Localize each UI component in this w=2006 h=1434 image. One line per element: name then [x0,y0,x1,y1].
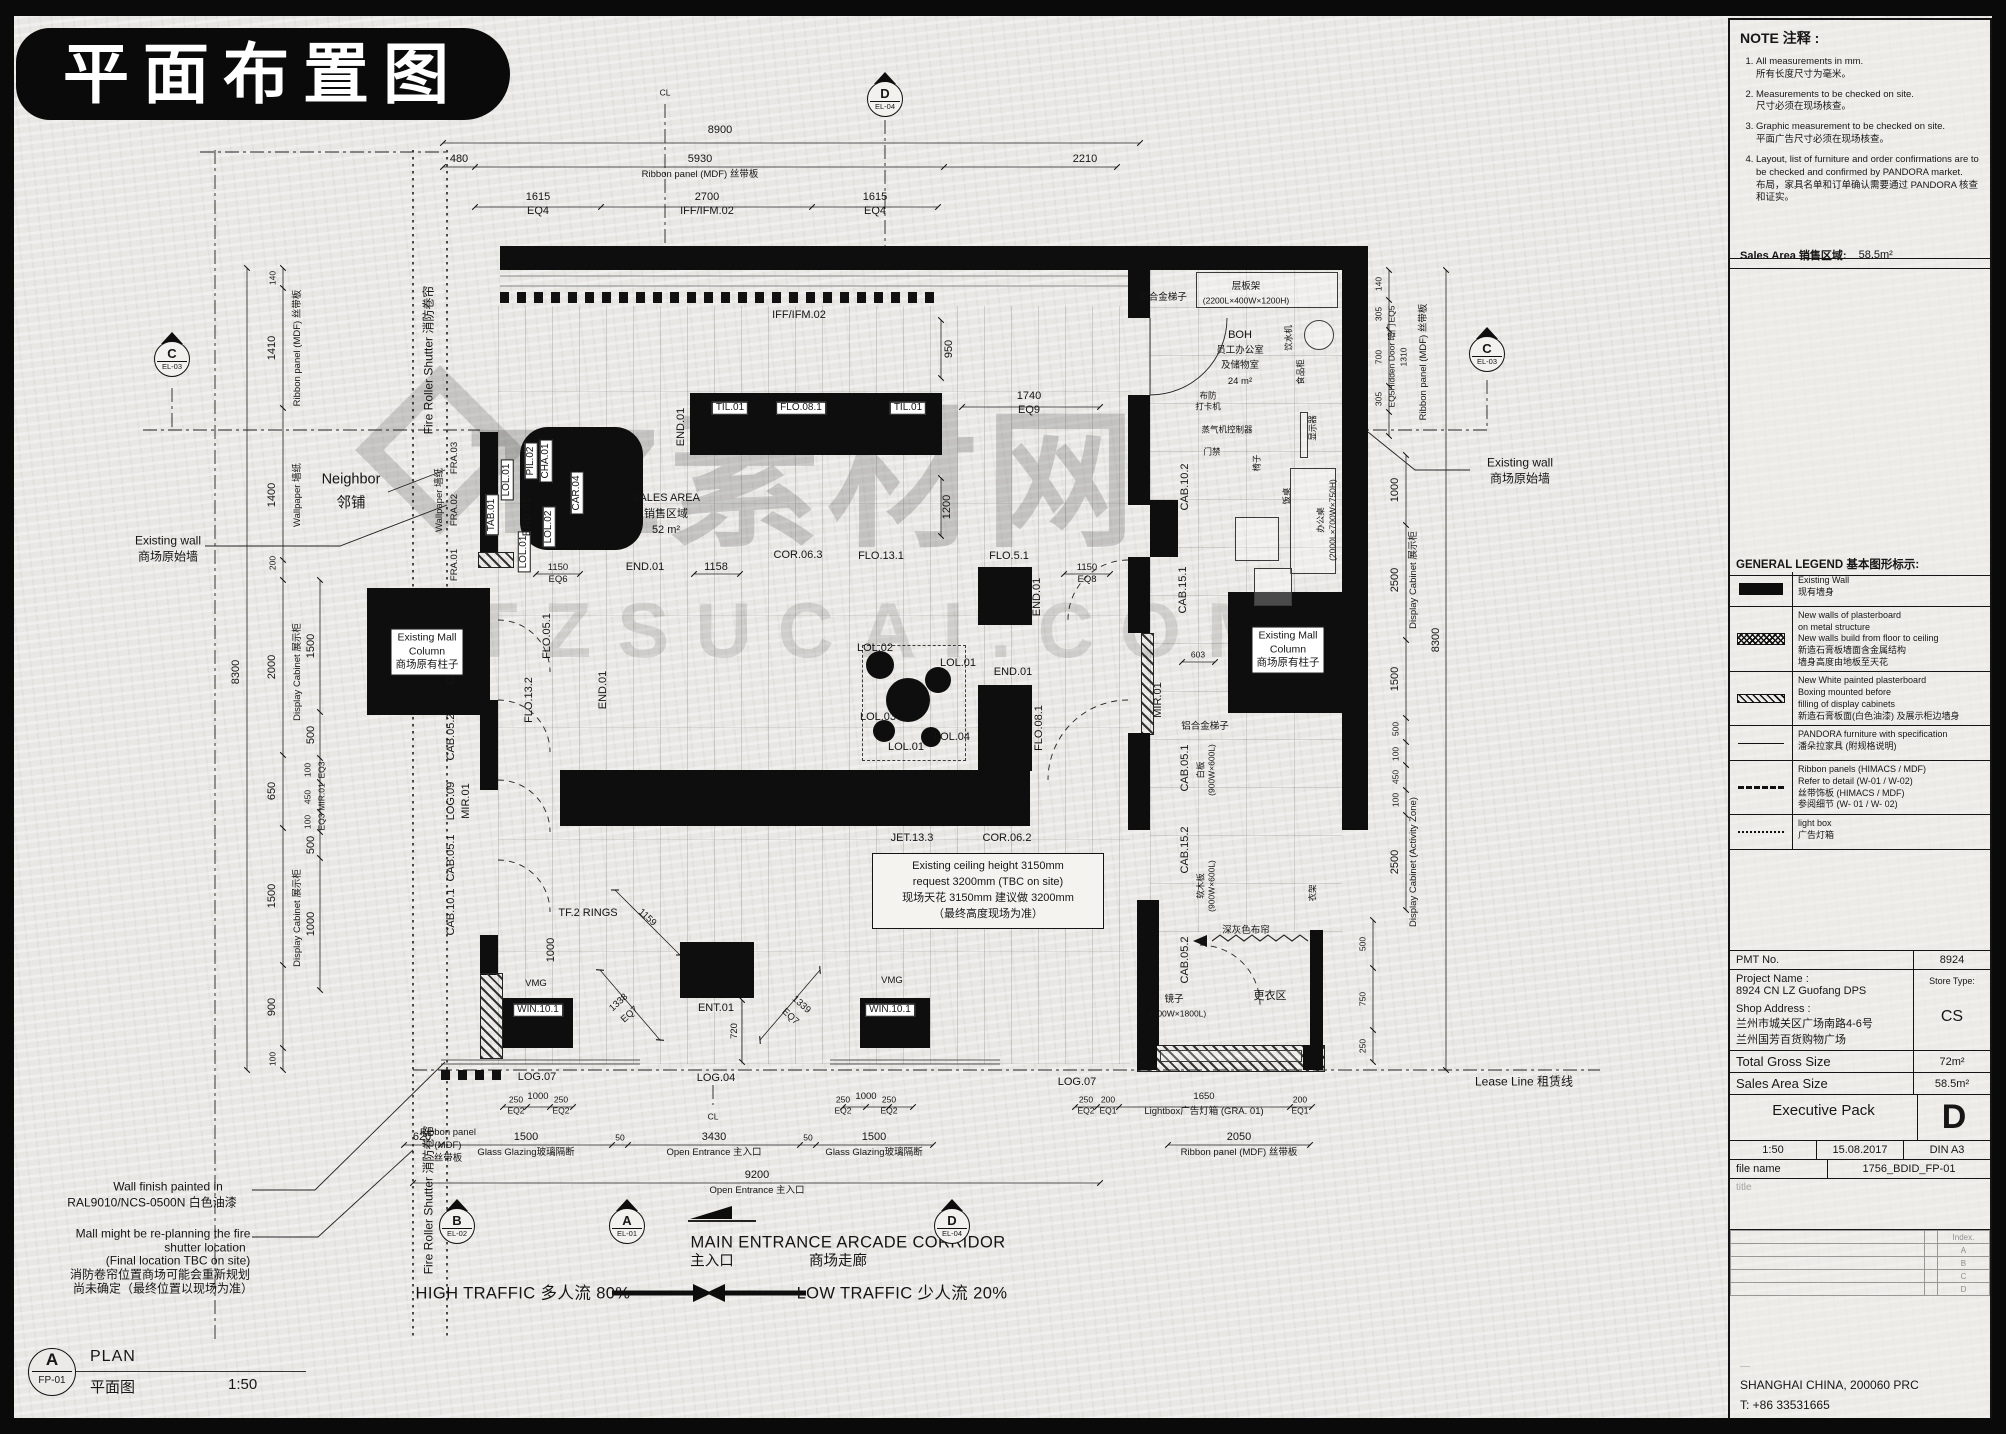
plan-label: 900 [267,998,279,1016]
note-item-en: Measurements to be checked on site. [1756,89,1914,100]
frame-top [0,0,2006,16]
plan-label: 100 [269,1052,278,1066]
fixture-outline [1254,568,1292,606]
plan-label: IFF/IFM.02 [772,310,826,322]
legend-line: on metal structure [1798,622,1939,634]
plan-label: shutter location [164,1242,245,1255]
frame-left [0,0,14,1434]
plan-label: EQ2 [880,1107,897,1116]
plan-label: 250 [882,1096,896,1105]
address-line1: 兰州市城关区广场南路4-6号 [1736,1015,1873,1031]
plan-label: Wallpaper 墙纸 [293,463,303,527]
plan-label: 3430 [702,1132,726,1144]
plan-label: 椅子 [1253,454,1262,471]
elevation-marker-bubble: DEL-04 [867,81,903,117]
wall-segment [500,246,1368,270]
plan-label: LOL.02 [857,643,893,655]
legend-symbol-existing-swatch [1739,583,1783,595]
plan-label: 1615 [863,192,887,204]
legend-row-text: Existing Wall现有墙身 [1793,572,1854,606]
plan-label: Ribbon panel (MDF) 丝带板 [1181,1148,1298,1158]
legend-symbol-ribbon-swatch [1738,786,1784,789]
wall-segment [441,1070,503,1080]
plan-label: 250 [554,1096,568,1105]
plan-label: VMG [881,976,903,986]
plan-label: 8300 [231,660,243,684]
pmt-row: PMT No. 8924 [1730,951,1990,970]
plan-label: 2500 [1390,850,1402,874]
legend-symbol-newwall-swatch [1737,633,1785,645]
plan-label: Fire Roller Shutter 消防卷帘 [423,1126,436,1275]
plan-label: VMG [525,979,547,989]
fixture-outline [1235,517,1279,561]
pmt-value: 8924 [1913,951,1990,969]
frame-bottom [0,1418,2006,1434]
plan-label: MIR.01 [461,783,473,818]
plan-label: TIL.01 [712,402,748,415]
legend-row-ribbon: Ribbon panels (HIMACS / MDF)Refer to det… [1730,761,1990,815]
note-item: Measurements to be checked on site.尺寸必须在… [1756,89,1980,115]
legend-symbol-cell [1730,726,1793,760]
legend-row-text: PANDORA furniture with specification潘朵拉家… [1793,726,1952,760]
store-type-value: CS [1941,1008,1963,1026]
plan-label: Lease Line 租赁线 [1475,1076,1573,1089]
plan-label: 1500 [1390,667,1402,691]
ceiling-note-line: （最终高度现场为准） [879,907,1097,923]
lounge-chair [866,651,894,679]
gross-size-row: Total Gross Size 72m² [1730,1051,1990,1073]
note-item-en: Graphic measurement to be checked on sit… [1756,121,1945,132]
plan-label: TF.2 RINGS [558,908,617,920]
footer-faded: — [1740,1361,1980,1372]
plan-label: 50 [803,1134,812,1143]
legend-row-text: light box广告灯箱 [1793,815,1839,849]
plan-label: 140 [1375,277,1384,291]
paper-size: DIN A3 [1903,1141,1990,1159]
legend-table: Existing Wall现有墙身New walls of plasterboa… [1730,572,1990,850]
plan-label: 950 [944,340,956,358]
legend-symbol-cell [1730,572,1793,606]
legend-line: 丝带饰板 (HIMACS / MDF) [1798,788,1926,800]
plan-label: 白板 [1197,761,1206,778]
plan-label: LOL.01 [501,460,514,501]
sales-area-row: Sales Area 销售区域: 58.5m² [1730,242,1990,269]
plan-label: WIN.10.1 [513,1004,563,1017]
legend-row-existing: Existing Wall现有墙身 [1730,572,1990,607]
plan-label: END.01 [598,671,610,710]
notes-heading: NOTE 注释 : [1740,28,1980,48]
legend-line: 墙身高度由地板至天花 [1798,657,1939,669]
plan-label: 305 [1375,392,1384,406]
filename-value: 1756_BDID_FP-01 [1827,1160,1990,1178]
legend-symbol-boxing-swatch [1737,694,1785,703]
wall-segment [480,935,498,975]
plan-label: 1000 [546,938,558,962]
notes-list: All measurements in mm.所有长度尺寸为毫米。Measure… [1740,56,1980,205]
pack-row: Executive Pack D [1730,1095,1990,1141]
ceiling-note-line: 现场天花 3150mm 建议做 3200mm [879,891,1097,907]
legend-symbol-light-swatch [1738,831,1784,833]
sheet-ref-title-en: PLAN [90,1348,136,1366]
pack-revision-letter: D [1917,1095,1990,1140]
plan-label: MIR.01 [318,783,327,810]
plan-label: 商场原始墙 [138,551,198,564]
plan-label: COR.06.3 [774,550,823,562]
wall-segment [500,292,940,303]
note-item-zh: 尺寸必须在现场核查。 [1756,101,1980,114]
plan-label: CAB.10.2 [1180,463,1192,510]
sales-size-label: Sales Area Size [1730,1073,1834,1094]
note-item: Graphic measurement to be checked on sit… [1756,121,1980,147]
plan-label: 500 [306,726,318,744]
legend-line: New walls build from floor to ceiling [1798,633,1939,645]
wall-segment [1128,557,1150,633]
wall-segment [1137,1045,1157,1070]
note-item-en: Layout, list of furniture and order conf… [1756,154,1979,178]
sales-area-value: 58.5m² [1859,249,1893,261]
plan-label: (2200L×400W×1200H) [1203,297,1289,306]
mall-column-label: Existing MallColumn商场原有柱子 [391,629,464,676]
plan-label: 140 [269,271,278,285]
elevation-marker-code: EL-03 [155,362,189,371]
store-type-label: Store Type: [1929,976,1975,986]
sheet-ref-title-zh: 平面图 [90,1376,135,1397]
legend-line: 广告灯箱 [1798,830,1834,842]
plan-label: LOG.07 [1058,1077,1097,1089]
elevation-marker-bubble: CEL-03 [1469,336,1505,372]
plan-label: EQ9 [1018,405,1040,417]
plan-label: 1000 [855,1092,876,1102]
plan-label: 2700 [695,192,719,204]
ceiling-height-note: Existing ceiling height 3150mm request 3… [872,853,1104,929]
plan-label: Neighbor [322,472,381,487]
elevation-marker-bubble: CEL-03 [154,341,190,377]
legend-line: light box [1798,818,1834,830]
plan-label: 2050 [1227,1132,1251,1144]
plan-label: 200 [1101,1096,1115,1105]
plan-label: 更衣区 [1254,991,1287,1003]
plan-label: Existing wall [135,535,201,548]
plan-label: 603 [1191,651,1205,660]
sheet-title-banner: 平面布置图 [16,28,510,120]
pack-label: Executive Pack [1730,1095,1917,1140]
plan-label: 打卡机 [1195,403,1221,412]
plan-label: 100 [1392,747,1401,761]
plan-label: 邻铺 [337,496,366,511]
mall-column-label-line: 商场原有柱子 [396,659,459,673]
plan-label: EQ2 [507,1107,524,1116]
footer-phone: T: +86 33531665 [1740,1398,1980,1412]
elevation-marker-el-04: DEL-04 [865,72,905,128]
plan-label: Existing wall [1487,457,1553,470]
wall-segment [1342,713,1368,830]
plan-label: SALES AREA [632,493,700,505]
plan-label: 500 [1359,937,1368,951]
plan-label: 1500 [267,884,279,908]
plan-label: 员工办公室 [1216,346,1264,356]
plan-label: LOL.04 [934,732,970,744]
plan-label: Ribbon panel (MDF) 丝带板 [642,170,759,180]
frame-right [1992,0,2006,1434]
elevation-marker-bubble: DEL-04 [934,1208,970,1244]
plan-label: Display Cabinet 展示柜 [293,623,303,721]
elevation-marker-letter: C [157,347,187,362]
legend-line: 潘朵拉家具 (附规格说明) [1798,741,1947,753]
plan-label: CAB.05.1 [1180,744,1192,791]
wall-segment [1342,246,1368,726]
legend-symbol-cell [1730,815,1793,849]
plan-label: EQ3 [318,813,327,830]
plan-label: COR.06.2 [983,833,1032,845]
plan-label: FLO.05.1 [542,613,554,659]
plan-label: END.01 [522,498,534,537]
sales-size-row: Sales Area Size 58.5m² [1730,1073,1990,1095]
elevation-marker-el-03: CEL-03 [1467,327,1507,383]
drawing-scale: 1:50 [1730,1141,1816,1159]
plan-label: 750 [1359,992,1368,1006]
elevation-marker-letter: D [870,87,900,102]
plan-label: (900W×600L) [1208,744,1217,796]
plan-label: 8300 [1431,628,1443,652]
title-row-label: title [1730,1179,1758,1229]
elevation-marker-code: EL-02 [440,1229,474,1238]
mall-column-label-line: 商场原有柱子 [1257,657,1320,671]
sheet-ref-rule [76,1371,306,1372]
elevation-marker-el-03: CEL-03 [152,332,192,388]
plan-label: LOL.01 [888,742,924,754]
plan-label: 620 [413,1132,431,1144]
plan-label: Wall finish painted in [113,1181,223,1194]
plan-label: EQ6 [548,575,567,585]
wall-segment [560,770,1030,826]
elevation-marker-letter: B [442,1214,472,1229]
plan-label: Lightbox广告灯箱 (GRA. 01) [1144,1107,1263,1117]
plan-label: FRA.02 [450,494,460,526]
plan-label: 650 [267,782,279,800]
revision-row: A [1731,1244,1990,1257]
plan-label: CAB.15.1 [1178,566,1190,613]
legend-line: filling of display cabinets [1798,699,1960,711]
filename-label: file name [1730,1160,1787,1178]
wall-segment [1128,733,1150,830]
drawing-date: 15.08.2017 [1816,1141,1903,1159]
note-item-zh: 布局，家具名单和订单确认需要通过 PANDORA 核查和证实。 [1756,180,1980,206]
plan-label: 软木板 [1197,873,1206,899]
plan-label: 250 [509,1096,523,1105]
plan-label: 及储物室 [1221,361,1259,371]
plan-label: 商场走廊 [809,1254,867,1269]
sidebar: NOTE 注释 : All measurements in mm.所有长度尺寸为… [1728,18,1992,1422]
plan-label: END.01 [676,408,688,447]
elevation-marker-letter: A [612,1214,642,1229]
sheet-ref-number: FP-01 [29,1372,75,1390]
legend-row-text: New White painted plasterboardBoxing mou… [1793,672,1965,725]
plan-label: 250 [1359,1039,1368,1053]
plan-label: WIN.10.1 [865,1004,915,1017]
elevation-marker-bubble: BEL-02 [439,1208,475,1244]
elevation-marker-el-01: AEL-01 [607,1199,647,1255]
project-cell: Project Name : 8924 CN LZ Guofang DPS Sh… [1730,970,1879,1050]
plan-label: 500 [306,836,318,854]
plan-label: EQ1 [1099,1107,1116,1116]
legend-line: Existing Wall [1798,575,1849,587]
plan-label: CAR.04 [571,471,584,514]
plan-label: Open Entrance 主入口 [666,1148,761,1158]
plan-label: 1150 [548,563,568,573]
plan-label: 显示器 [1309,415,1318,441]
notes-panel: NOTE 注释 : All measurements in mm.所有长度尺寸为… [1730,20,1990,259]
legend-row-boxing: New White painted plasterboardBoxing mou… [1730,672,1990,726]
store-type-cell: Store Type: CS [1913,970,1990,1050]
plan-label: Glass Glazing玻璃隔断 [825,1148,922,1158]
wall-segment [1150,500,1178,557]
plan-label: CAB.15.2 [1180,826,1192,873]
title-block-footer: — SHANGHAI CHINA, 200060 PRC T: +86 3353… [1730,1347,1990,1420]
plan-label: END.01 [626,562,665,574]
gross-size-value: 72m² [1913,1051,1990,1072]
plan-label: 商场原始墙 [1490,473,1550,486]
legend-line: PANDORA furniture with specification [1798,729,1947,741]
plan-label: CL [708,1113,719,1122]
plan-label: EQ3 [318,761,327,778]
plan-label: Wallpaper 墙纸 [435,468,445,532]
plan-label: 100 [304,815,313,829]
mall-column-label-line: Column [1257,643,1320,657]
note-item: Layout, list of furniture and order conf… [1756,154,1980,205]
elevation-marker-el-02: BEL-02 [437,1199,477,1255]
plan-label: 蒸气机控制器 [1201,426,1252,435]
plan-label: TIL.01 [890,402,926,415]
plan-label: TAB.01 [486,495,499,536]
plan-label: FLO.08.1 [776,402,826,415]
plan-label: 2500 [1390,568,1402,592]
plan-label: EQ2 [552,1107,569,1116]
plan-label: EQ5 [1388,305,1397,322]
plan-label: 1000 [1390,478,1402,502]
plan-label: 门禁 [1203,448,1220,457]
plan-label: LOL.01 [940,658,976,670]
plan-label: Glass Glazing玻璃隔断 [477,1148,574,1158]
plan-label: 铝合金梯子 [1139,293,1187,303]
plan-label: LOL.01 [518,532,531,573]
plan-label: 1500 [306,634,318,658]
plan-label: 700 [1375,350,1384,364]
legend-line: Ribbon panels (HIMACS / MDF) [1798,764,1926,776]
plan-label: (2000L×700W×750H) [1329,479,1338,561]
wall-segment [978,685,1032,771]
plan-label: CAB.05.1 [446,834,458,881]
title-row: title [1730,1179,1990,1230]
plan-label: 办公桌 [1317,507,1326,533]
legend-line: 新造石膏板墙面含金属结构 [1798,645,1939,657]
plan-label: 铝合金梯子 [1181,722,1229,732]
plan-label: 1740 [1017,391,1041,403]
wall-segment [478,552,514,568]
legend-symbol-cell [1730,607,1793,671]
plan-label: 层板架 [1232,282,1261,292]
legend-row-text: New walls of plasterboardon metal struct… [1793,607,1944,671]
plan-label: EQ2 [1077,1107,1094,1116]
plan-label: 52 m² [652,525,680,537]
sheet-ref-scale: 1:50 [228,1376,257,1393]
plan-label: Hidden Door 暗门 [1388,323,1397,390]
plan-label: EQ5 [1388,390,1397,407]
note-item: All measurements in mm.所有长度尺寸为毫米。 [1756,56,1980,82]
plan-label: Ribbon panel (MDF) 丝带板 [1419,304,1429,421]
plan-label: 100 [304,763,313,777]
plan-label: 尚未确定（最终位置以现场为准） [73,1283,253,1296]
note-item-en: All measurements in mm. [1756,56,1863,67]
plan-label: 销售区域 [644,509,688,521]
plan-label: (Final location TBC on site) [106,1255,251,1268]
plan-label: 50 [615,1134,624,1143]
plan-label: 1500 [514,1132,538,1144]
legend-row-light: light box广告灯箱 [1730,815,1990,850]
plan-label: 主入口 [690,1254,734,1269]
pmt-label: PMT No. [1730,951,1785,969]
plan-label: 1500 [862,1132,886,1144]
legend-line: 现有墙身 [1798,587,1849,599]
note-item-zh: 所有长度尺寸为毫米。 [1756,69,1980,82]
plan-label: MIR.01 [1153,682,1165,717]
plan-label: Display Cabinet (Activity Zone) [1409,797,1419,927]
legend-line: New walls of plasterboard [1798,610,1939,622]
plan-label: CAB.05.2 [1180,936,1192,983]
meta-row: 1:50 15.08.2017 DIN A3 [1730,1141,1990,1160]
sales-size-value: 58.5m² [1913,1073,1990,1094]
legend-line: New White painted plasterboard [1798,675,1960,687]
plan-label: Ribbon panel (MDF) 丝带板 [293,290,303,407]
filename-row: file name 1756_BDID_FP-01 [1730,1160,1990,1179]
plan-label: 2210 [1073,154,1097,166]
plan-label: 100 [1392,793,1401,807]
plan-label: 450 [304,790,313,804]
plan-label: 5930 [688,154,712,166]
mall-column-label-line: Column [396,645,459,659]
plan-label: FLO.13.1 [858,551,904,563]
plan-label: 1150 [1077,563,1097,573]
plan-label: 1400 [267,483,279,507]
legend-row-furn: PANDORA furniture with specification潘朵拉家… [1730,726,1990,761]
plan-label: 布防 [1199,392,1216,401]
revision-row: D [1731,1283,1990,1296]
plan-label: 丝带板 [434,1154,463,1164]
plan-label: Display Cabinet 展示柜 [1409,531,1419,629]
plan-label: (MDF) [435,1141,462,1151]
plan-label: 饭桌 [1283,487,1292,504]
plan-label: Display Cabinet 展示柜 [293,869,303,967]
legend-line: 新造石膏板面(白色油漆) 及展示柜边墙身 [1798,711,1960,723]
plan-label: (900W×600L) [1208,860,1217,912]
plan-label: Fire Roller Shutter 消防卷帘 [423,286,436,435]
plan-label: EQ8 [1077,575,1096,585]
plan-label: 200 [269,556,278,570]
plan-label: ENT.01 [698,1003,734,1015]
wall-segment [1128,395,1150,505]
plan-label: EQ4 [527,206,549,218]
legend-line: Boxing mounted before [1798,687,1960,699]
mall-column-label-line: Existing Mall [396,632,459,646]
plan-label: RAL9010/NCS-0500N 白色油漆 [67,1197,236,1210]
elevation-marker-letter: D [937,1214,967,1229]
ceiling-note-line: Existing ceiling height 3150mm [879,859,1097,875]
plan-label: LOW TRAFFIC 少人流 20% [797,1285,1008,1302]
plan-label: END.01 [1032,578,1044,617]
plan-label: FLO.5.1 [989,551,1029,563]
plan-label: 9200 [745,1170,769,1182]
plan-label: 250 [1079,1096,1093,1105]
plan-label: FRA.01 [450,549,460,581]
